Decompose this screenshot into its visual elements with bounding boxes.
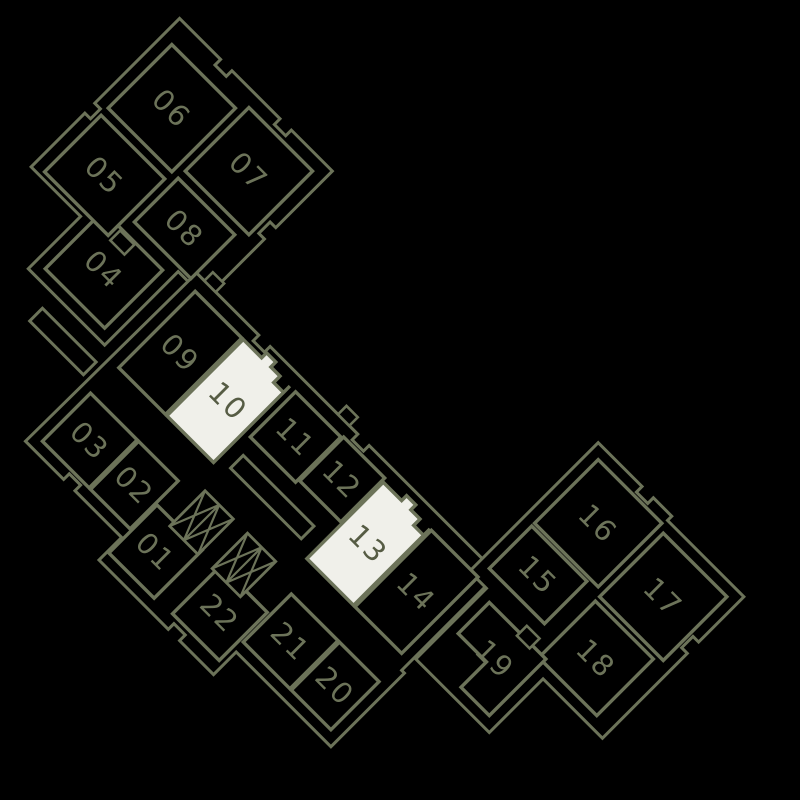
floor-plan-canvas: 0102030405060708091011121314151617181920… bbox=[0, 0, 800, 800]
floor-plan: 0102030405060708091011121314151617181920… bbox=[0, 0, 800, 800]
